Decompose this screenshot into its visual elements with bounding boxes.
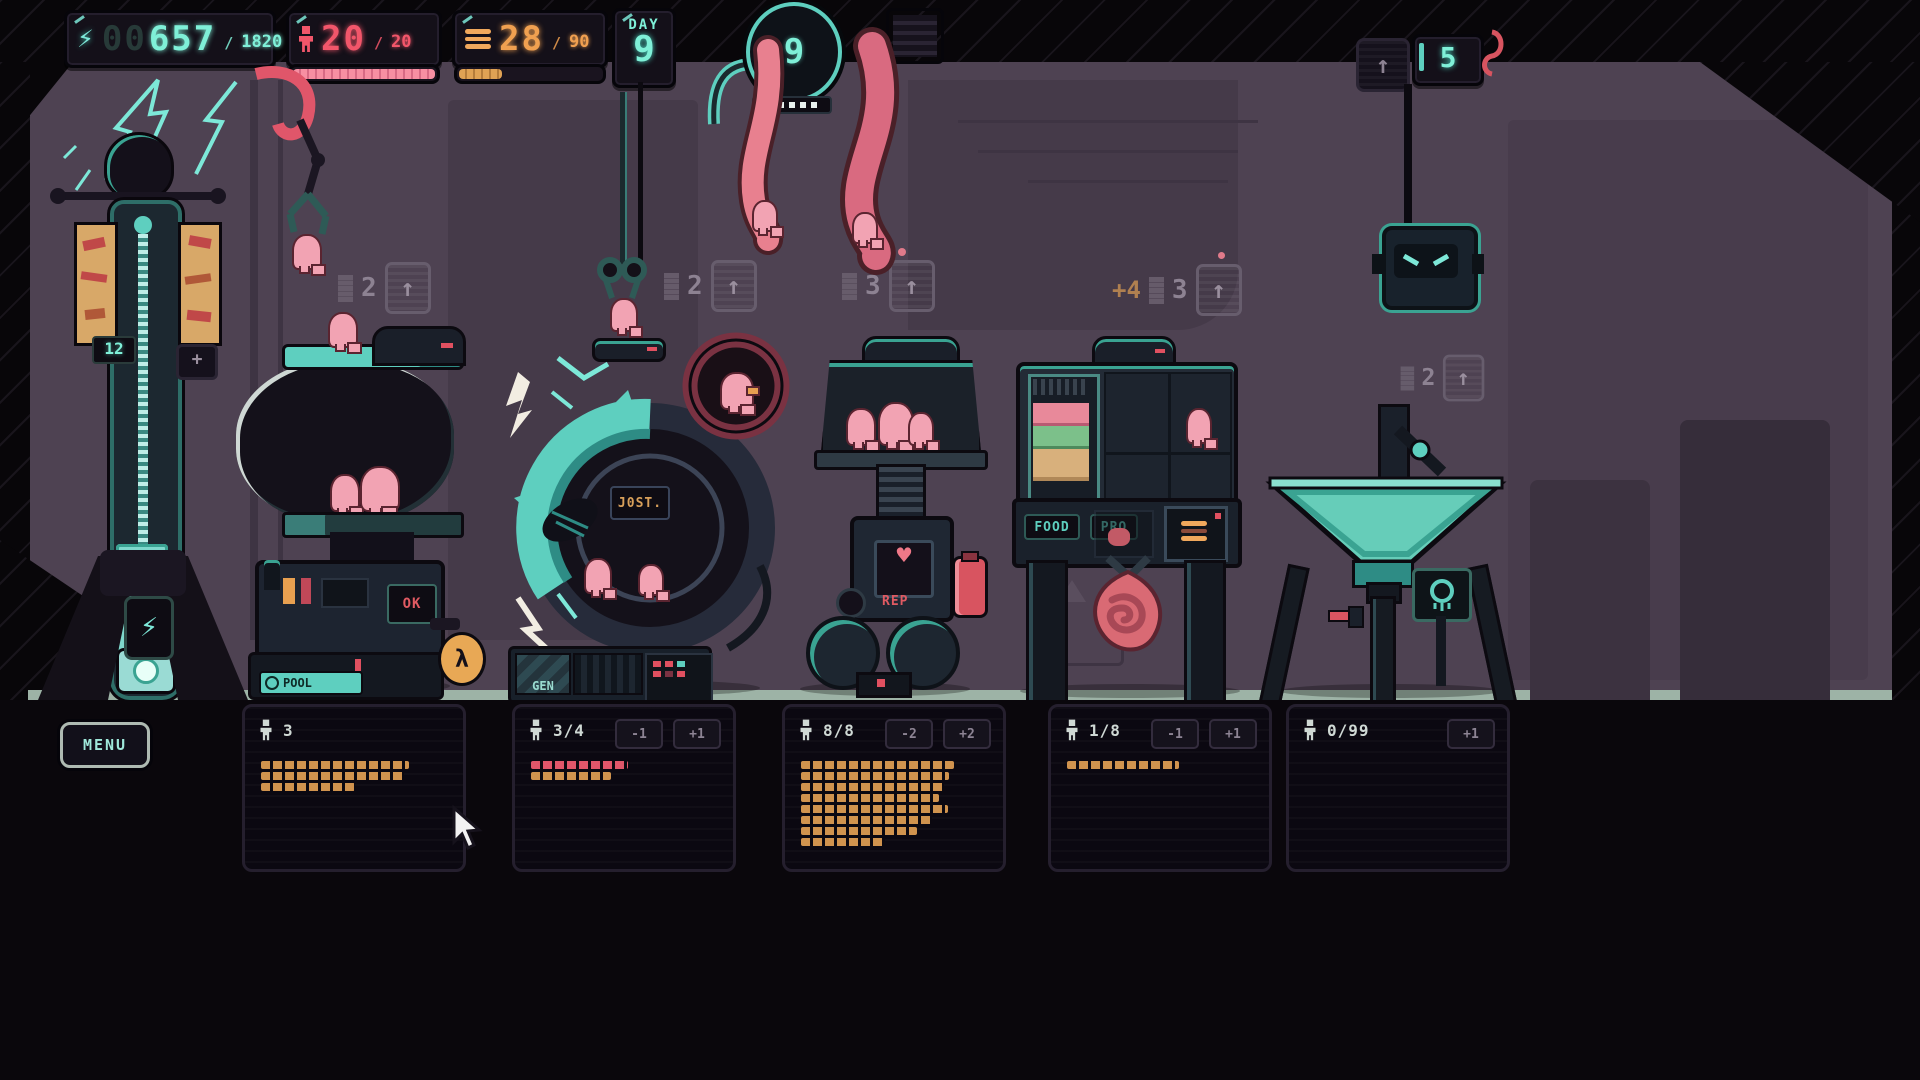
population-counter: 20 / 20 — [286, 10, 442, 68]
shelf-line — [1106, 452, 1230, 455]
poster-scribble — [82, 237, 106, 251]
panel-buttons: -1+1 — [1151, 719, 1257, 749]
upgrade-button[interactable]: ↑ — [711, 260, 757, 312]
storage-cable — [1404, 84, 1412, 244]
claw-robot-head[interactable] — [1382, 226, 1478, 310]
poster-scribble — [187, 310, 212, 322]
production-bars — [531, 761, 628, 780]
noob-grabbed-by-tentacle — [752, 200, 778, 232]
noob-in-press — [846, 408, 876, 446]
remove-worker-button[interactable]: -1 — [615, 719, 663, 749]
panel-header: 3 — [259, 717, 294, 743]
indicator-value: 3 — [1172, 275, 1188, 305]
food-counter: 28 / 90 — [452, 10, 608, 68]
worker-panel-storage[interactable]: 0/99+1 — [1286, 704, 1510, 872]
game-screen: ⚡ 00657 / 1820 20 / 20 28 / 90 DAY 9 — [0, 0, 1920, 1080]
wall-circuit — [958, 120, 1258, 123]
slot-dots — [842, 273, 857, 300]
production-bars — [261, 761, 409, 791]
menu-label: MENU — [83, 736, 127, 754]
pool-base-unit[interactable]: OK — [255, 560, 445, 662]
energy-prefix: 00 — [102, 19, 147, 59]
production-bar — [801, 772, 949, 780]
worker-count: 8/8 — [823, 721, 855, 740]
food-leg — [1026, 560, 1068, 704]
storage-pipe-accent — [1419, 43, 1424, 71]
hook-icon — [1478, 28, 1508, 88]
pool-ok-display: OK — [387, 584, 437, 624]
poster-scribble — [81, 271, 108, 283]
worker-count: 3 — [283, 721, 294, 740]
production-bar — [1067, 761, 1179, 769]
mouse-cursor — [452, 806, 482, 850]
food-layer-green — [1033, 426, 1089, 449]
ok-text: OK — [403, 596, 422, 612]
worker-icon — [1066, 720, 1077, 741]
pendant-arm — [430, 618, 460, 630]
population-value: 20 — [321, 19, 366, 59]
production-bar — [801, 783, 944, 791]
poster-right — [178, 222, 222, 346]
coil-top-ball — [134, 216, 152, 234]
worker-count: 0/99 — [1327, 721, 1370, 740]
lambda-pendant[interactable]: λ — [438, 632, 486, 686]
pool-name-plate: POOL — [259, 671, 363, 695]
production-bar — [801, 816, 932, 824]
coil-screw — [138, 234, 148, 544]
bg-machinery — [1530, 480, 1650, 700]
skull-screen-icon — [1415, 571, 1469, 619]
noob-running-in-wheel — [638, 564, 664, 596]
poster-left — [74, 222, 118, 346]
base-grille — [321, 578, 369, 608]
platform-light — [647, 347, 657, 351]
wall-circuit — [978, 150, 1238, 153]
food-label-plate: FOOD — [1024, 514, 1080, 540]
person-icon — [299, 26, 313, 52]
crossbar-cap — [210, 188, 226, 204]
burger-icon — [465, 29, 491, 49]
hatch-eye-light — [441, 343, 453, 348]
press-foot — [856, 672, 912, 698]
upgrade-button[interactable]: ↑ — [889, 260, 935, 312]
up-arrow-icon: ↑ — [904, 272, 918, 300]
tesla-counter-badge: 12 — [92, 336, 136, 364]
burger-icon — [1181, 521, 1207, 541]
press-gauge — [836, 588, 866, 618]
worker-icon — [1304, 720, 1315, 741]
production-bar — [801, 827, 917, 835]
upgrade-button[interactable]: ↑ — [385, 262, 431, 314]
panel-header: 3/4 — [529, 717, 585, 743]
food-layer-tan — [1033, 449, 1089, 481]
panel-buttons: -2+2 — [885, 719, 991, 749]
bg-machinery — [1680, 420, 1830, 700]
slot-dots — [1401, 366, 1415, 390]
press-screw — [876, 464, 926, 524]
worker-icon — [260, 720, 271, 741]
funnel-center-pole — [1370, 596, 1396, 706]
noob-grabbed-by-tentacle — [852, 212, 878, 244]
base-light-orange — [283, 578, 295, 604]
day-value: 9 — [615, 33, 673, 67]
indicator-value: 2 — [1421, 365, 1435, 392]
food-max: 90 — [569, 32, 589, 52]
window-light — [1215, 513, 1221, 519]
poster-scribble — [185, 273, 212, 285]
door-divider — [1168, 374, 1171, 500]
up-arrow-icon: ↑ — [1376, 51, 1390, 79]
food-bar-fill — [459, 69, 502, 79]
tiny-worker — [264, 560, 280, 590]
worker-panel-repair[interactable]: 8/8-2+2 — [782, 704, 1006, 872]
storage-upgrade-button[interactable]: ↑ — [1356, 38, 1410, 92]
indicator-value: 2 — [361, 273, 377, 303]
food-glass-column — [1028, 374, 1100, 502]
pool-conveyor: POOL — [248, 652, 444, 700]
lever-base — [1348, 606, 1364, 628]
robot-ear — [1472, 254, 1484, 274]
console-pole — [1436, 616, 1446, 686]
storage-counter: 5 — [1412, 34, 1484, 86]
slot-dots — [1149, 277, 1164, 304]
duck-beak — [746, 386, 760, 396]
storage-count: 5 — [1415, 37, 1481, 79]
add-worker-button[interactable]: +1 — [1209, 719, 1257, 749]
worker-count: 3/4 — [553, 721, 585, 740]
add-worker-button[interactable]: +2 — [943, 719, 991, 749]
cabinet-doors — [1104, 372, 1232, 502]
production-bar — [261, 772, 404, 780]
upgrade-button[interactable]: ↑ — [1443, 355, 1484, 402]
gen-label: GEN — [532, 679, 554, 693]
spark-dot — [1218, 252, 1225, 259]
upgrade-button[interactable]: ↑ — [1196, 264, 1242, 316]
panel-header: 8/8 — [799, 717, 855, 743]
slot-dots — [664, 273, 679, 300]
noob-duck-in-red-wheel — [720, 372, 754, 410]
slot-dots — [338, 275, 353, 302]
noob-held-by-claw — [610, 298, 638, 332]
wall-circuit — [1028, 180, 1228, 183]
production-bar — [801, 761, 954, 769]
heart-icon: ♥ — [895, 543, 913, 567]
intestine-guts — [1078, 552, 1178, 672]
noob-in-cabinet — [1186, 408, 1212, 444]
production-bar — [531, 761, 628, 769]
rep-label: REP — [882, 594, 908, 609]
panel-buttons: -1+1 — [615, 719, 721, 749]
spark-effect — [488, 352, 618, 462]
gen-cable — [700, 560, 780, 660]
upgrade-indicator: 2 ↑ — [338, 262, 431, 314]
battery-capsule[interactable] — [952, 556, 988, 618]
production-bars — [1067, 761, 1179, 769]
worker-icon — [530, 720, 541, 741]
add-worker-button[interactable]: +1 — [1447, 719, 1495, 749]
worker-panel-pool[interactable]: 3 — [242, 704, 466, 872]
up-arrow-icon: ↑ — [1457, 365, 1470, 390]
claw-cable — [620, 92, 625, 264]
noob-on-lid — [328, 312, 358, 348]
population-max: 20 — [391, 32, 411, 52]
poster-scribble — [85, 308, 106, 320]
crossbar-cap — [50, 188, 66, 204]
up-arrow-icon: ↑ — [726, 272, 740, 300]
gen-grille — [573, 653, 643, 695]
indicator-bonus: +4 — [1112, 276, 1141, 304]
menu-button[interactable]: MENU — [60, 722, 150, 768]
foot-light — [877, 679, 885, 687]
battery-cap — [961, 551, 979, 562]
remove-worker-button[interactable]: -1 — [1151, 719, 1199, 749]
food-layer-pink — [1033, 403, 1089, 426]
noob-held-by-claw — [292, 234, 322, 270]
base-collar — [100, 550, 186, 596]
lightning-icon: ⚡ — [140, 613, 158, 643]
angry-eyes-icon — [1394, 244, 1458, 278]
panel-header: 1/8 — [1065, 717, 1121, 743]
plus-icon: + — [192, 349, 203, 370]
gear-icon — [265, 676, 279, 690]
panel-buttons: +1 — [1447, 719, 1495, 749]
tesla-orb-head — [104, 132, 174, 200]
upgrade-indicator: +4 3 ↑ — [1112, 264, 1242, 316]
worker-count: 1/8 — [1089, 721, 1121, 740]
pool-hatch-dome — [372, 326, 466, 366]
column-grille — [1033, 379, 1089, 395]
gen-label-plate: GEN — [515, 653, 571, 695]
press-screen: ♥ — [874, 540, 934, 598]
worker-panel-generator[interactable]: 3/4-1+1 — [512, 704, 736, 872]
tesla-bolt-badge: ⚡ — [124, 596, 174, 660]
pool-label: POOL — [283, 676, 312, 690]
production-bar — [801, 794, 939, 802]
conveyor-light — [355, 659, 361, 671]
gen-status-lights — [645, 653, 713, 707]
day-sign-pole — [638, 82, 643, 262]
production-bars — [801, 761, 954, 846]
day-counter: DAY 9 — [612, 8, 676, 88]
production-bar — [801, 838, 885, 846]
wheel-badge-text: J0ST. — [618, 496, 662, 511]
funnel-hopper[interactable] — [1268, 474, 1504, 574]
food-leg — [1184, 560, 1226, 704]
indicator-value: 3 — [865, 271, 881, 301]
base-light-red — [301, 578, 311, 604]
upgrade-indicator: 2 ↑ — [1401, 355, 1484, 402]
food-slash: / — [552, 34, 561, 52]
funnel-console-screen[interactable] — [1412, 568, 1472, 622]
tesla-plus-button[interactable]: + — [176, 344, 218, 380]
tesla-crossbar — [58, 192, 218, 200]
remove-worker-button[interactable]: -2 — [885, 719, 933, 749]
up-arrow-icon: ↑ — [1211, 276, 1225, 304]
energy-slash: / — [224, 34, 233, 52]
production-bar — [801, 805, 948, 813]
poster-scribble — [188, 235, 211, 249]
worker-icon — [800, 720, 811, 741]
lambda-icon: λ — [455, 645, 469, 673]
production-bar — [261, 761, 409, 769]
indicator-value: 2 — [687, 271, 703, 301]
meat-blob — [1108, 528, 1130, 546]
noob-in-pool — [360, 466, 400, 512]
noob-in-press — [908, 412, 934, 446]
production-bar — [531, 772, 611, 780]
food-value: 28 — [499, 19, 544, 59]
worker-panel-food[interactable]: 1/8-1+1 — [1048, 704, 1272, 872]
gen-box[interactable]: GEN — [508, 646, 712, 704]
tesla-counter-value: 12 — [104, 339, 123, 358]
energy-counter: ⚡ 00657 / 1820 — [64, 10, 276, 68]
robot-ear — [1372, 254, 1384, 274]
claw-robot-visor — [1394, 244, 1458, 278]
food-bar — [454, 64, 606, 84]
lightning-icon: ⚡ — [77, 25, 94, 53]
food-label: FOOD — [1034, 520, 1069, 535]
noob-in-pool — [330, 474, 360, 512]
add-worker-button[interactable]: +1 — [673, 719, 721, 749]
panel-header: 0/99 — [1303, 717, 1370, 743]
energy-max: 1820 — [241, 32, 282, 52]
population-slash: / — [374, 34, 383, 52]
hatch-eye-light — [1155, 349, 1165, 353]
production-bar — [261, 783, 355, 791]
upgrade-indicator: 2 ↑ — [664, 260, 757, 312]
up-arrow-icon: ↑ — [400, 274, 414, 302]
wheel-badge: J0ST. — [610, 486, 670, 520]
energy-value: 657 — [149, 19, 216, 59]
